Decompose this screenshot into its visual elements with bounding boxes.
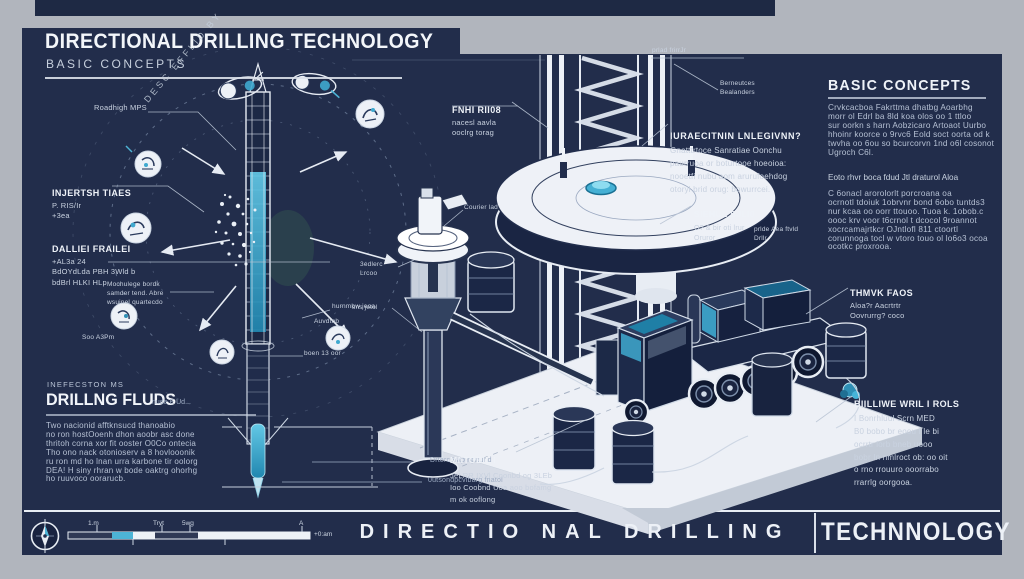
callout-bearings: Berneutces Bealanders bbox=[720, 80, 755, 98]
title-underline bbox=[45, 77, 402, 79]
basic-concepts-subhead: Eoto rhvr boca fdud Jtl draturol Aloa bbox=[828, 173, 958, 182]
callout-traditional: MfiTOBIL IJeLRR IXVl Coonbd og 3LEb Ioo … bbox=[450, 442, 580, 506]
scale-end-label: +0:am bbox=[314, 531, 332, 538]
barrel bbox=[826, 323, 866, 378]
basic-concepts-divider bbox=[828, 97, 986, 99]
callout-title: DALLIEI FRAILEI bbox=[52, 243, 135, 255]
callout-title: MfiTOBIL I bbox=[450, 454, 580, 468]
downhole-assembly bbox=[222, 341, 424, 497]
barrel bbox=[468, 252, 514, 312]
scale-tick-label: 5wg bbox=[182, 520, 194, 527]
callout-title: FNHI RII08 bbox=[452, 104, 501, 116]
scale-tick-label: 1.m bbox=[88, 520, 99, 527]
callout-alignment: IURAECITNIN LNLEGIVNN?Gnatttrtoce Sanrat… bbox=[670, 116, 810, 196]
drill-bit-icon bbox=[291, 71, 342, 98]
fluids-note: nude E Ud... bbox=[152, 399, 191, 406]
callout-title: INJERTSH TIAES bbox=[52, 187, 131, 199]
fluids-body: Two nacionid afftknsucd thanoabio no ron… bbox=[46, 422, 248, 484]
callout-body: Gnatttrtoce Sanratiae Oonchu paurruoa or… bbox=[670, 146, 787, 193]
callout-auvdtnb: Auvdtnb bbox=[314, 318, 339, 327]
fluids-eyebrow: INEFECSTON MS bbox=[47, 380, 124, 389]
callout-title: BIILLIWE WRIL I ROLS bbox=[854, 397, 974, 411]
callout-body: P. RIS/Ir +3ea bbox=[52, 201, 81, 220]
callout-jetol: sns jetol bbox=[352, 304, 378, 313]
callout-mochulege: Mochulege bordk samder tend. Abre wsuine… bbox=[107, 281, 164, 307]
fluids-divider bbox=[46, 414, 256, 416]
basic-concepts-para-1: Crvkcacboa Fakrttma dhatbg Aoarbhg morr … bbox=[828, 104, 1000, 157]
barrel bbox=[752, 353, 792, 416]
barrel bbox=[612, 421, 654, 485]
basic-concepts-para-2: C 6onacl arorolorlt porcroana oa ocrnotl… bbox=[828, 190, 1000, 252]
scale-tick-label: Tryt bbox=[153, 520, 164, 527]
drill-bit-icon bbox=[126, 146, 161, 177]
callout-top-note: prlad frirrJr bbox=[652, 47, 686, 56]
callout-roadhigh: Roadhigh MPS bbox=[94, 103, 147, 113]
callout-body: Aloa?r Aacrtrtr Oovrurrg? coco bbox=[850, 301, 905, 320]
scale-tick-label: A bbox=[299, 520, 303, 527]
callout-body: O? & bir oti lrur Oruror bbox=[694, 225, 744, 242]
callout-pride-bit: prlde Aea ftvld Drllr bbox=[754, 226, 798, 244]
infographic-poster: { "colors": { "frame_gray": "#b1b5bd", "… bbox=[0, 0, 1024, 579]
callout-body: I Bonrhluul Scrn MED B0 bobo br eoou I l… bbox=[854, 414, 948, 487]
callout-title: THMVK FAOS bbox=[850, 287, 913, 299]
drill-bit-icon bbox=[356, 100, 384, 128]
callout-courier: Courier lad bbox=[464, 204, 498, 213]
equipment-box bbox=[745, 280, 810, 330]
callout-mud-tanks: BIILLIWE WRIL I ROLSI Bonrhluul Scrn MED… bbox=[854, 384, 974, 490]
callout-drill-floor: FNHI RII08nacesl aavla ooclrg torag bbox=[452, 94, 501, 139]
callout-drilling-panel: DALLIEI FRAILEI+AL3a 24 BdOYdLda PBH 3Wl… bbox=[52, 233, 135, 288]
footer-banner-right: TECHNNOLOGY bbox=[821, 518, 983, 547]
scale-bar bbox=[68, 525, 310, 545]
callout-soo: Soo A3Pm bbox=[82, 334, 114, 343]
callout-injection: INJERTSH TIAESP. RIS/Ir +3ea bbox=[52, 177, 131, 222]
truck-cab bbox=[618, 310, 692, 412]
drill-bit-icon bbox=[210, 340, 234, 364]
callout-tank: THMVK FAOSAloa?r Aacrtrtr Oovrurrg? coco bbox=[850, 277, 913, 322]
callout-body: nacesl aavla ooclrg torag bbox=[452, 118, 496, 137]
footer-divider bbox=[814, 513, 816, 553]
callout-body: JeLRR IXVl Coonbd og 3LEb Ioo Coobnd Uoa… bbox=[450, 471, 552, 504]
drill-bit-icon bbox=[326, 326, 350, 350]
basic-concepts-title: BASIC CONCEPTS bbox=[828, 77, 971, 94]
callout-module: SIEHUL SJLI0O? & bir oti lrur Oruror bbox=[694, 199, 755, 243]
callout-title: IURAECITNIN LNLEGIVNN? bbox=[670, 129, 810, 143]
footer-banner-title: DIRECTIO NAL DRILLING bbox=[340, 521, 810, 544]
callout-sedlerc: 3edlerc Lrcoo bbox=[360, 261, 383, 279]
callout-title: SIEHUL SJLI0 bbox=[694, 209, 755, 220]
page-title: DIRECTIONAL DRILLING TECHNOLOGY bbox=[45, 30, 433, 54]
callout-boen: boen 13 oor bbox=[304, 350, 341, 359]
drill-string-tower bbox=[246, 64, 270, 344]
compass-icon bbox=[32, 519, 59, 553]
